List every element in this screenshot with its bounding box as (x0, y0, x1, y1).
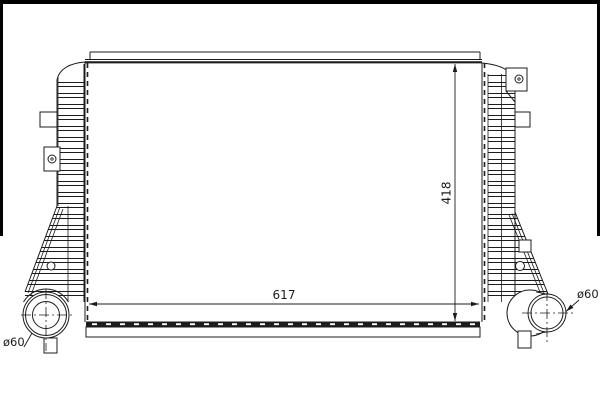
left-port-leader-line (24, 333, 32, 347)
right-port-label: ø60 (577, 287, 599, 301)
height-dim-label: 418 (440, 182, 454, 205)
width-dim-arrow-right-icon (471, 302, 479, 306)
right-tank-detail-boss (519, 240, 531, 252)
left-mount-tab (40, 112, 57, 127)
intercooler-drawing: 617 418 ø60 ø60 (0, 0, 600, 400)
height-dim-arrow-top-icon (453, 64, 457, 72)
left-bracket-hole-icon (48, 155, 56, 163)
right-tank-detail-hole (516, 262, 525, 271)
height-dim-arrow-bottom-icon (453, 313, 457, 321)
callout-left-port: ø60 (3, 333, 32, 349)
core (85, 62, 485, 322)
width-dim-arrow-left-icon (89, 302, 97, 306)
frame-left-bar (0, 0, 3, 236)
right-mount-tab (515, 112, 530, 127)
left-tank-detail-hole (47, 262, 55, 270)
right-port (507, 290, 574, 348)
top-header-tank (85, 52, 482, 62)
dimension-core-width: 617 (89, 288, 479, 306)
frame-top-bar (0, 0, 600, 4)
right-bracket-hole-icon (515, 75, 523, 83)
bottom-header-plate (86, 322, 480, 328)
right-tank (482, 63, 548, 302)
left-tank (25, 62, 85, 302)
right-tank-top-curve (482, 63, 508, 71)
intercooler-technical-drawing-page: 617 418 ø60 ø60 (0, 0, 600, 400)
bottom-header-tank (86, 322, 480, 338)
dimension-core-height: 418 (440, 64, 458, 321)
left-port-label: ø60 (3, 335, 25, 349)
width-dim-label: 617 (273, 288, 296, 302)
left-tank-ribs-upper (58, 77, 84, 206)
bottom-header-body (86, 327, 480, 337)
callout-right-port: ø60 (566, 287, 599, 312)
right-port-bottom-tab (518, 331, 531, 348)
